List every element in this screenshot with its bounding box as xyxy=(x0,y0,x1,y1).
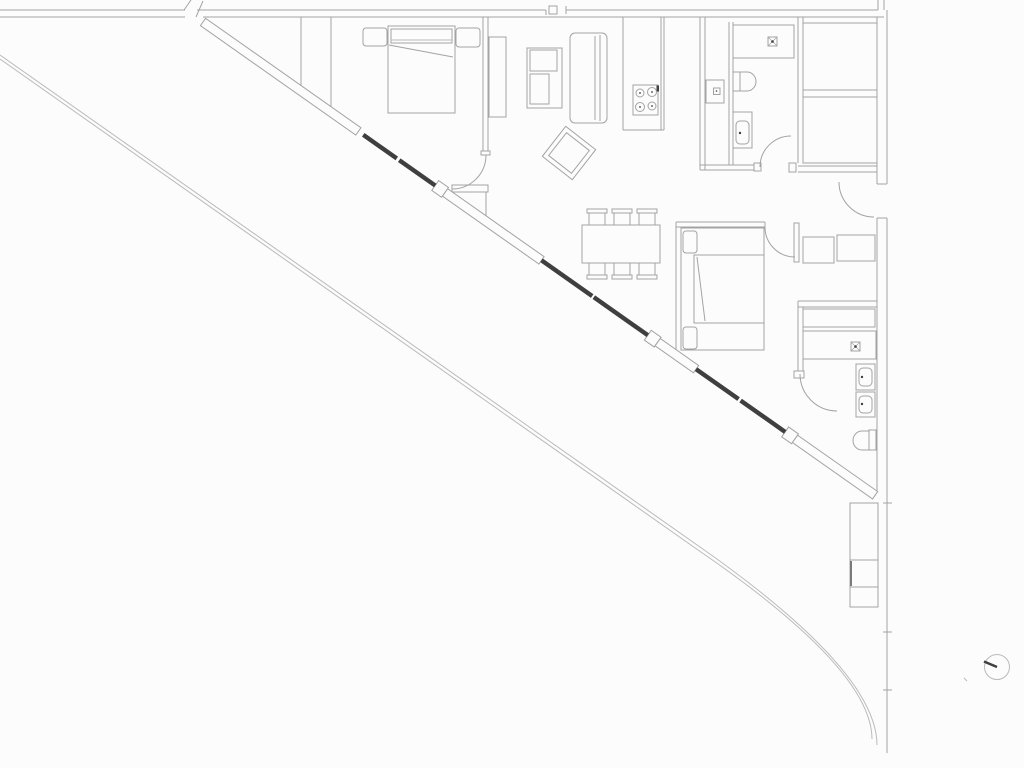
sink-1 xyxy=(856,364,875,390)
bedroom2-closets xyxy=(803,235,875,263)
top-exterior-wall xyxy=(0,0,884,17)
bathroom2-walls xyxy=(794,301,877,378)
bathroom1-cabinet xyxy=(733,25,794,58)
nightstand-right xyxy=(456,28,480,47)
bed-1 xyxy=(388,26,455,113)
bed-2 xyxy=(681,228,764,350)
laundry-niche xyxy=(706,80,724,103)
vent-box-2-icon xyxy=(851,342,860,351)
coffee-table xyxy=(542,126,595,179)
bathroom2-cabinet xyxy=(803,331,876,359)
bathroom2-shelf xyxy=(803,309,875,327)
dining-chairs xyxy=(587,209,657,279)
bathroom2-door-arc xyxy=(800,374,837,411)
bathroom1-door-arc xyxy=(760,136,791,167)
stove xyxy=(633,85,659,115)
vent-box-icon xyxy=(768,37,777,46)
sofa xyxy=(570,33,607,123)
hall-wall xyxy=(798,166,877,172)
sink-2 xyxy=(856,392,875,417)
floor-plan-sheet xyxy=(0,0,1024,768)
living-partition-wall xyxy=(452,17,490,221)
terrace-edge xyxy=(0,55,877,745)
glazed-facade xyxy=(200,17,879,500)
bedroom2-door-arc xyxy=(765,227,795,257)
wardrobe xyxy=(489,37,506,117)
nightstand-left xyxy=(363,28,387,46)
entry-door-arc xyxy=(839,182,874,217)
floor-plan-drawing xyxy=(0,0,1024,768)
terrace-unit xyxy=(850,503,878,607)
closet-squares xyxy=(803,23,877,163)
shelf-unit xyxy=(527,48,562,108)
vanity-sink-1 xyxy=(733,112,752,148)
dining-table xyxy=(582,225,660,263)
toilet-1 xyxy=(733,72,756,91)
north-arrow-icon xyxy=(964,655,1010,682)
toilet-2 xyxy=(853,430,876,450)
right-exterior-wall xyxy=(877,0,892,753)
